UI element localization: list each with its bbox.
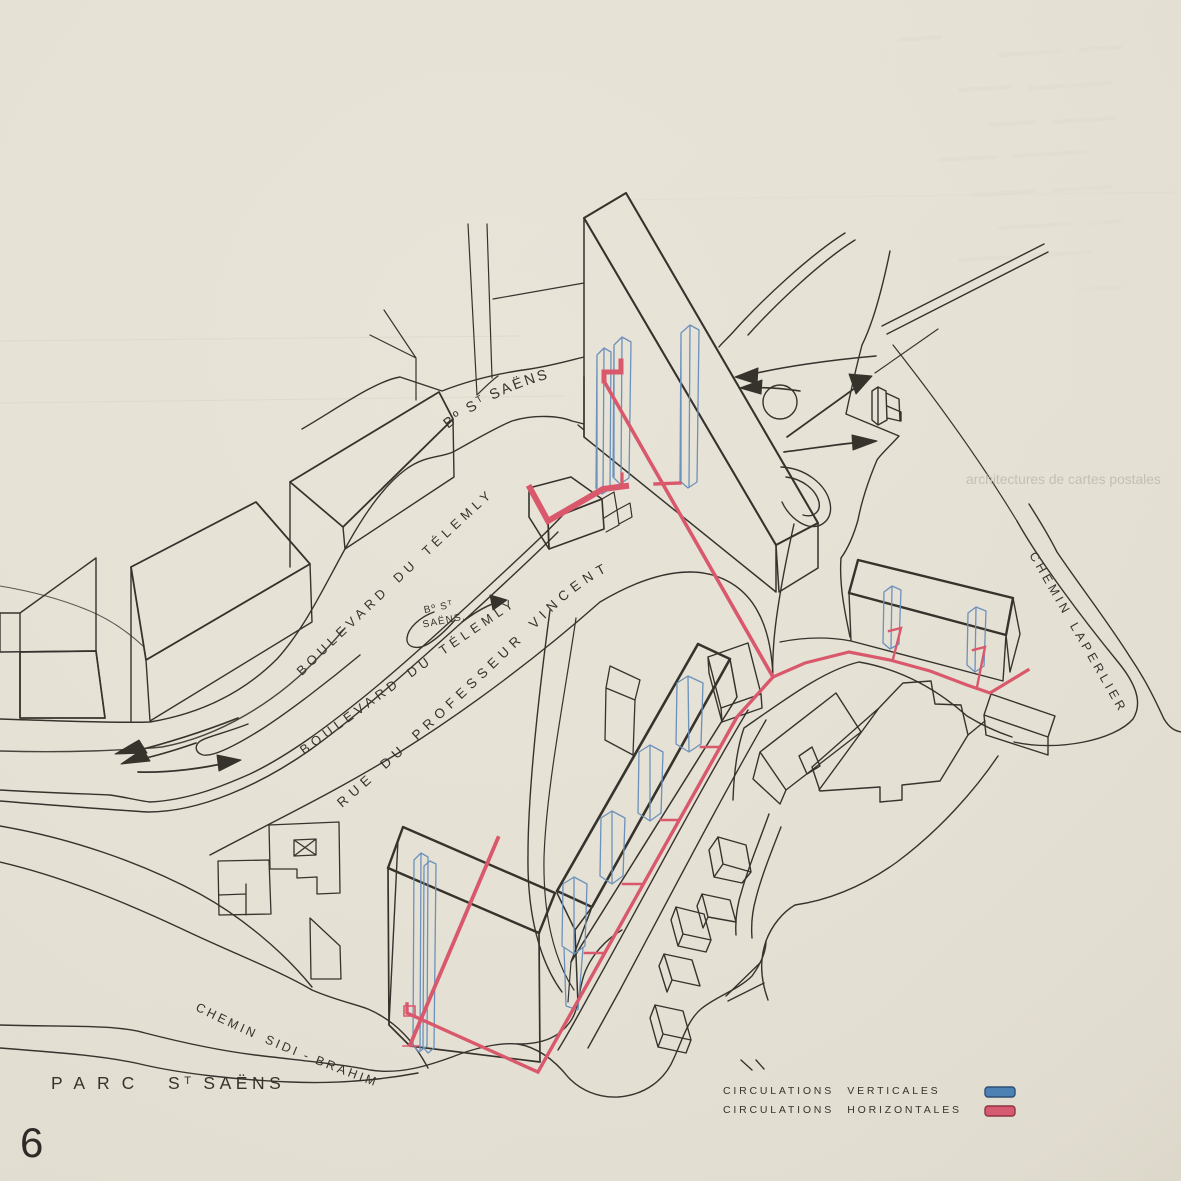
svg-text:PARC: PARC bbox=[51, 1073, 146, 1093]
svg-text:CIRCULATIONS HORIZONTALES: CIRCULATIONS HORIZONTALES bbox=[723, 1104, 962, 1116]
svg-text:architectures de cartes postal: architectures de cartes postales bbox=[966, 472, 1161, 487]
svg-text:6: 6 bbox=[20, 1119, 43, 1166]
svg-text:CIRCULATIONS VERTICALES: CIRCULATIONS VERTICALES bbox=[723, 1085, 940, 1097]
